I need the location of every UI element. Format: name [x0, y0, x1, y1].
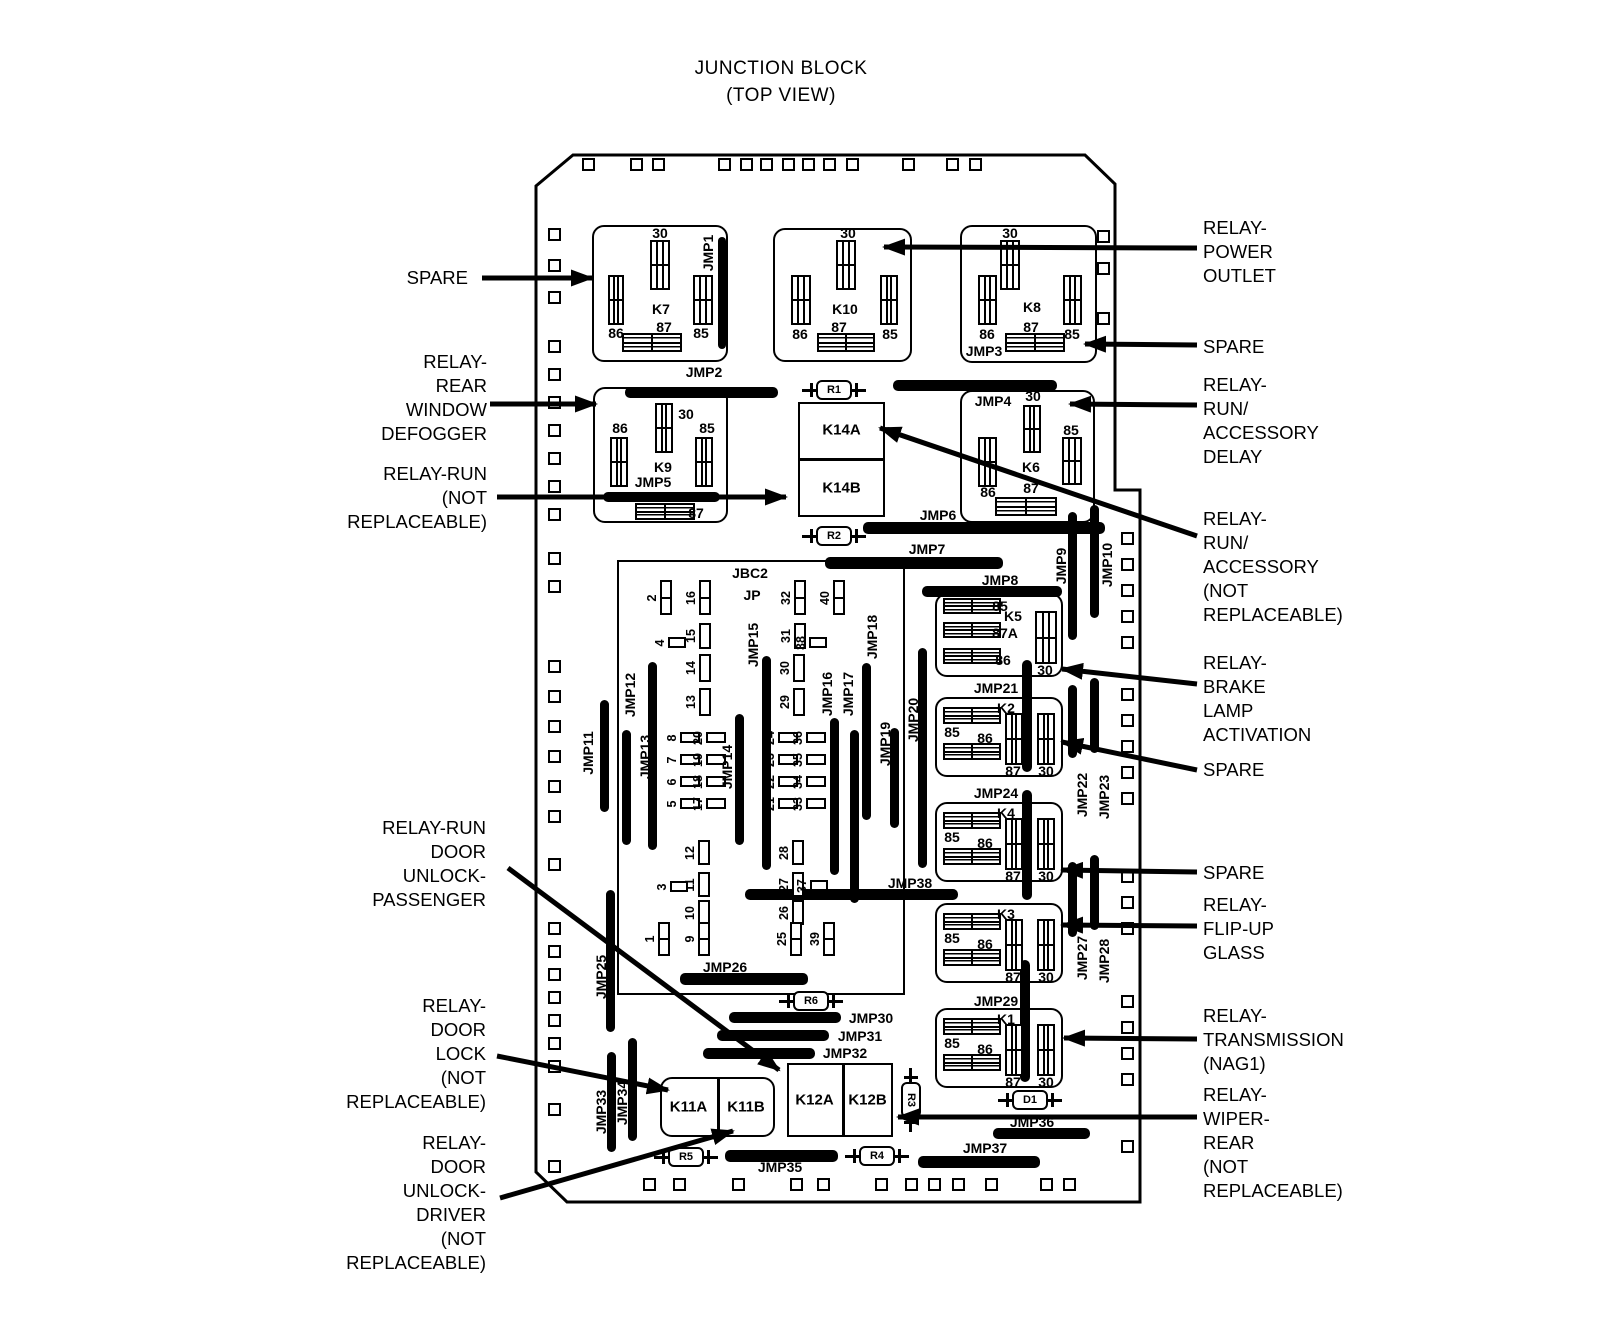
jmp37-bar [918, 1156, 1040, 1168]
label-rear-window-defogger: RELAY-REARWINDOWDEFOGGER [381, 350, 487, 446]
edge-square-right-2-9 [1121, 766, 1134, 779]
jmp21-label: JMP21 [974, 680, 1018, 696]
label-relay-wiper-rear: RELAY-WIPER-REAR(NOTREPLACEABLE) [1203, 1083, 1343, 1203]
edge-square-right-2-8 [1121, 740, 1134, 753]
cavity-36 [806, 732, 826, 743]
label-relay-door-lock-line-1: RELAY- [346, 994, 486, 1018]
edge-square-top-13 [969, 158, 982, 171]
cavity-number-38: 38 [794, 636, 808, 650]
edge-square-bottom-6 [875, 1178, 888, 1191]
jmp13-bar [622, 730, 631, 845]
relay-name-k6: K6 [1022, 459, 1040, 475]
edge-square-left-20 [548, 922, 561, 935]
cavity-25 [790, 922, 802, 956]
pin87-k10: 87 [831, 319, 847, 335]
jmp32-label: JMP32 [823, 1045, 867, 1061]
label-relay-run-accessory-not-replaceable-line-4: (NOT [1203, 579, 1343, 603]
cavity-37 [810, 880, 828, 891]
label-relay-door-unlock-driver-line-2: DOOR [346, 1155, 486, 1179]
pin85-k1: 85 [944, 1035, 960, 1051]
pin30-k7: 30 [652, 225, 668, 241]
edge-square-top-3 [652, 158, 665, 171]
label-relay-brake-lamp-activation-line-2: BRAKE [1203, 675, 1311, 699]
label-relay-transmission-nag1-line-2: TRANSMISSION [1203, 1028, 1344, 1052]
jmp7-bar [825, 557, 1003, 569]
cavity-number-35: 35 [791, 753, 805, 767]
edge-square-left-12 [548, 580, 561, 593]
cavity-32 [794, 580, 806, 615]
jmp16-label: JMP16 [819, 672, 835, 716]
label-relay-transmission-nag1: RELAY-TRANSMISSION(NAG1) [1203, 1004, 1344, 1076]
pin30-k5: 30 [1037, 662, 1053, 678]
jmp18-label: JMP18 [864, 615, 880, 659]
label-rear-window-defogger-line-2: REAR [381, 374, 487, 398]
label-spare-right-3-line-1: SPARE [1203, 861, 1264, 885]
pin30-k9: 30 [678, 406, 694, 422]
component-r6: R6 [779, 991, 843, 1011]
edge-square-right-2-12 [1121, 896, 1134, 909]
pin87-k6: 87 [1023, 480, 1039, 496]
label-relay-door-lock-line-3: LOCK [346, 1042, 486, 1066]
relay-name-k9: K9 [654, 459, 672, 475]
label-relay-run-accessory-delay: RELAY-RUN/ACCESSORYDELAY [1203, 373, 1319, 469]
relay-name-k11b: K11B [727, 1099, 765, 1116]
jmp34-label: JMP34 [614, 1081, 630, 1125]
jmp22-bar [1068, 685, 1077, 758]
label-rear-window-defogger-line-4: DEFOGGER [381, 422, 487, 446]
jmp17-bar [850, 730, 859, 903]
relay-name-k4: K4 [997, 805, 1015, 821]
cavity-number-3: 3 [655, 883, 669, 890]
edge-square-right-1-3 [1097, 312, 1110, 325]
cavity-33 [806, 798, 826, 809]
relay-terminal-9 [1000, 240, 1020, 290]
label-relay-wiper-rear-line-2: WIPER- [1203, 1107, 1343, 1131]
cavity-number-8: 8 [665, 734, 679, 741]
edge-square-bottom-4 [790, 1178, 803, 1191]
jmp38-label: JMP38 [888, 875, 932, 891]
edge-square-left-8 [548, 452, 561, 465]
component-tick [810, 529, 813, 543]
cavity-number-16: 16 [684, 591, 698, 605]
edge-square-bottom-7 [905, 1178, 918, 1191]
edge-square-top-4 [718, 158, 731, 171]
cavity-number-34: 34 [791, 775, 805, 789]
component-body-r5: R5 [668, 1147, 704, 1167]
cavity-12 [698, 840, 710, 865]
cavity-3 [670, 881, 688, 892]
jmp20-bar [918, 648, 927, 868]
relay-name-k11a: K11A [670, 1099, 708, 1116]
relay-terminal-11 [1063, 275, 1082, 325]
pin85-k6: 85 [1063, 422, 1079, 438]
jmp35-label: JMP35 [758, 1159, 802, 1175]
relay-terminal-19 [1062, 437, 1082, 485]
edge-square-left-15 [548, 720, 561, 733]
pin85-k9: 85 [699, 420, 715, 436]
edge-square-bottom-8 [928, 1178, 941, 1191]
jmp31-bar [717, 1030, 829, 1041]
cavity-number-33: 33 [791, 797, 805, 811]
jmp3-label: JMP3 [966, 343, 1003, 359]
component-tick [707, 1150, 710, 1164]
label-relay-brake-lamp-activation-line-1: RELAY- [1203, 651, 1311, 675]
jmp4-label: JMP4 [975, 393, 1012, 409]
cavity-39 [823, 922, 835, 956]
edge-square-right-2-3 [1121, 584, 1134, 597]
cavity-number-5: 5 [665, 800, 679, 807]
edge-square-top-10 [846, 158, 859, 171]
cavity-number-27: 27 [777, 878, 791, 892]
label-relay-run-accessory-not-replaceable-line-5: REPLACEABLE) [1203, 603, 1343, 627]
relay-terminal-37 [943, 1018, 1001, 1035]
relay-terminal-25 [943, 707, 1001, 724]
jmp20-label: JMP20 [905, 698, 921, 742]
edge-square-right-2-16 [1121, 1047, 1134, 1060]
pin86-k10: 86 [792, 326, 808, 342]
cavity-number-9: 9 [683, 936, 697, 943]
edge-square-top-2 [630, 158, 643, 171]
relay-terminal-4 [622, 333, 682, 352]
relay-terminal-23 [943, 648, 1001, 664]
label-relay-run-accessory-delay-line-3: ACCESSORY [1203, 421, 1319, 445]
label-relay-wiper-rear-line-3: REAR [1203, 1131, 1343, 1155]
edge-square-top-11 [902, 158, 915, 171]
jmp17-label: JMP17 [840, 672, 856, 716]
component-tick [855, 529, 858, 543]
pin30-k10: 30 [840, 225, 856, 241]
edge-square-right-1-1 [1097, 230, 1110, 243]
jmp28-label: JMP28 [1096, 939, 1112, 983]
edge-square-bottom-2 [673, 1178, 686, 1191]
relay-terminal-14 [610, 437, 628, 487]
pin30-k1: 30 [1038, 1074, 1054, 1090]
cavity-number-1: 1 [643, 936, 657, 943]
edge-square-left-5 [548, 368, 561, 381]
edge-square-left-28 [548, 1160, 561, 1173]
pin86-k1: 86 [977, 1041, 993, 1057]
jmp22-label: JMP22 [1074, 773, 1090, 817]
edge-square-left-27 [548, 1103, 561, 1116]
label-relay-run-door-unlock-passenger-line-1: RELAY-RUN [372, 816, 486, 840]
jmp14-bar [735, 714, 744, 845]
edge-square-bottom-12 [1063, 1178, 1076, 1191]
component-body-r1: R1 [816, 380, 852, 400]
component-body-r6: R6 [793, 991, 829, 1011]
relay-column-bar-b [1022, 790, 1032, 900]
cavity-17 [706, 798, 726, 809]
edge-square-left-3 [548, 291, 561, 304]
relay-name-k12b: K12B [848, 1092, 886, 1109]
pin86-k8: 86 [979, 326, 995, 342]
jmp8-label: JMP8 [982, 572, 1019, 588]
label-relay-door-unlock-driver-line-4: DRIVER [346, 1203, 486, 1227]
component-tick [898, 1149, 901, 1163]
component-tick [853, 1149, 856, 1163]
jmp25-label: JMP25 [593, 955, 609, 999]
cavity-11 [698, 872, 710, 897]
relay-terminal-10 [978, 275, 997, 325]
component-body-d1: D1 [1012, 1090, 1048, 1110]
relay-terminal-1 [650, 240, 670, 290]
relay-name-k14b: K14B [822, 479, 860, 496]
relay-name-k1: K1 [997, 1011, 1015, 1027]
cavity-number-23: 23 [763, 753, 777, 767]
cavity-14 [699, 654, 711, 682]
edge-square-right-2-18 [1121, 1140, 1134, 1153]
relay-terminal-20 [995, 497, 1057, 516]
pin87-k3: 87 [1005, 969, 1021, 985]
relay-name-k7: K7 [652, 301, 670, 317]
jmp2-bar [625, 387, 778, 398]
edge-square-top-6 [760, 158, 773, 171]
label-relay-flip-up-glass-line-3: GLASS [1203, 941, 1274, 965]
edge-square-top-9 [823, 158, 836, 171]
relay-terminal-40 [1037, 1024, 1055, 1076]
relay-terminal-15 [695, 437, 713, 487]
cavity-number-15: 15 [684, 629, 698, 643]
component-r5: R5 [654, 1147, 718, 1167]
relay-terminal-5 [836, 240, 856, 290]
label-relay-door-unlock-driver-line-1: RELAY- [346, 1131, 486, 1155]
edge-square-left-25 [548, 1037, 561, 1050]
edge-square-left-19 [548, 858, 561, 871]
label-relay-run-accessory-delay-line-2: RUN/ [1203, 397, 1319, 421]
component-r2: R2 [802, 526, 866, 546]
jmp32-bar [703, 1048, 815, 1059]
jmp13-label: JMP13 [637, 735, 653, 779]
label-relay-run-accessory-not-replaceable: RELAY-RUN/ACCESSORY(NOTREPLACEABLE) [1203, 507, 1343, 627]
title-line-1: JUNCTION BLOCK [531, 55, 1031, 82]
pin85-k2: 85 [944, 724, 960, 740]
edge-square-right-2-17 [1121, 1073, 1134, 1086]
jmp15-label: JMP15 [745, 623, 761, 667]
label-relay-run-not-replaceable-line-1: RELAY-RUN [347, 462, 487, 486]
jmp1-bar [718, 237, 726, 349]
label-relay-run-accessory-not-replaceable-line-2: RUN/ [1203, 531, 1343, 555]
component-tick [904, 1076, 918, 1079]
label-relay-run-not-replaceable-line-2: (NOT [347, 486, 487, 510]
label-spare-right-2-line-1: SPARE [1203, 758, 1264, 782]
pin86-k2: 86 [977, 730, 993, 746]
component-tick [855, 383, 858, 397]
pin87a-k5: 87A [992, 625, 1018, 641]
component-r1: R1 [802, 380, 866, 400]
jmp36-label: JMP36 [1010, 1114, 1054, 1130]
label-relay-run-door-unlock-passenger-line-3: UNLOCK- [372, 864, 486, 888]
label-relay-power-outlet-line-3: OUTLET [1203, 264, 1276, 288]
label-relay-door-unlock-driver-line-5: (NOT [346, 1227, 486, 1251]
relay-terminal-29 [943, 812, 1001, 829]
relay-divider-k11 [717, 1077, 720, 1137]
relay-terminal-33 [943, 913, 1001, 930]
label-relay-brake-lamp-activation-line-3: LAMP [1203, 699, 1311, 723]
arrow-transmission [1064, 1038, 1197, 1039]
component-body-r4: R4 [859, 1146, 895, 1166]
edge-square-right-2-15 [1121, 1021, 1134, 1034]
component-r3: R3 [901, 1068, 921, 1132]
jmp28-bar [1090, 855, 1099, 930]
jmp18-bar [862, 663, 871, 820]
jmp16-bar [830, 718, 839, 875]
cavity-number-20: 20 [691, 731, 705, 745]
cavity-number-24: 24 [763, 731, 777, 745]
pin87-k7: 87 [656, 319, 672, 335]
label-relay-run-door-unlock-passenger-line-4: PASSENGER [372, 888, 486, 912]
edge-square-top-5 [740, 158, 753, 171]
jmp6-label: JMP6 [920, 507, 957, 523]
pin85-k7: 85 [693, 325, 709, 341]
pin86-k5: 86 [995, 652, 1011, 668]
cavity-20 [706, 732, 726, 743]
relay-terminal-28 [1037, 713, 1055, 765]
cavity-38 [809, 637, 827, 648]
label-relay-run-door-unlock-passenger: RELAY-RUNDOORUNLOCK-PASSENGER [372, 816, 486, 912]
label-relay-door-lock-line-2: DOOR [346, 1018, 486, 1042]
pin30-k3: 30 [1038, 969, 1054, 985]
label-relay-run-accessory-delay-line-4: DELAY [1203, 445, 1319, 469]
edge-square-left-26 [548, 1060, 561, 1073]
label-relay-power-outlet-line-2: POWER [1203, 240, 1276, 264]
edge-square-left-22 [548, 968, 561, 981]
edge-square-left-16 [548, 750, 561, 763]
relay-terminal-36 [1037, 919, 1055, 971]
label-relay-door-unlock-driver-line-3: UNLOCK- [346, 1179, 486, 1203]
cavity-2 [660, 580, 672, 615]
edge-square-bottom-3 [732, 1178, 745, 1191]
cavity-number-10: 10 [683, 906, 697, 920]
label-spare-right-3: SPARE [1203, 861, 1264, 885]
jmp37-label: JMP37 [963, 1140, 1007, 1156]
label-rear-window-defogger-line-1: RELAY- [381, 350, 487, 374]
cavity-number-28: 28 [777, 846, 791, 860]
label-relay-door-unlock-driver: RELAY-DOORUNLOCK-DRIVER(NOTREPLACEABLE) [346, 1131, 486, 1275]
label-spare-right-1: SPARE [1203, 335, 1264, 359]
label-relay-wiper-rear-line-1: RELAY- [1203, 1083, 1343, 1107]
label-relay-flip-up-glass-line-2: FLIP-UP [1203, 917, 1274, 941]
jmp5-bar [603, 492, 720, 502]
label-relay-power-outlet-line-1: RELAY- [1203, 216, 1276, 240]
label-spare-left-line-1: SPARE [407, 266, 468, 290]
relay-name-k14a: K14A [822, 422, 860, 439]
label-relay-run-not-replaceable-line-3: REPLACEABLE) [347, 510, 487, 534]
component-body-r3: R3 [901, 1082, 921, 1118]
edge-square-right-2-7 [1121, 714, 1134, 727]
jmp10-label: JMP10 [1099, 543, 1115, 587]
edge-square-top-7 [782, 158, 795, 171]
cavity-number-40: 40 [818, 591, 832, 605]
cavity-number-12: 12 [683, 846, 697, 860]
edge-square-top-12 [946, 158, 959, 171]
edge-square-left-17 [548, 780, 561, 793]
edge-square-left-10 [548, 508, 561, 521]
jmp23-bar [1090, 678, 1099, 753]
label-relay-brake-lamp-activation-line-4: ACTIVATION [1203, 723, 1311, 747]
edge-square-bottom-11 [1040, 1178, 1053, 1191]
component-d1: D1 [998, 1090, 1062, 1110]
cavity-number-13: 13 [684, 695, 698, 709]
cavity-40 [833, 580, 845, 615]
cavity-number-4: 4 [653, 639, 667, 646]
edge-square-right-2-4 [1121, 610, 1134, 623]
pin85-k10: 85 [882, 326, 898, 342]
label-relay-run-door-unlock-passenger-line-2: DOOR [372, 840, 486, 864]
component-tick [810, 383, 813, 397]
relay-terminal-8 [817, 333, 875, 352]
edge-square-right-2-10 [1121, 792, 1134, 805]
pin30-k8: 30 [1002, 225, 1018, 241]
jmp23-label: JMP23 [1096, 775, 1112, 819]
relay-terminal-24 [1035, 611, 1057, 664]
edge-square-right-2-11 [1121, 870, 1134, 883]
component-r4: R4 [845, 1146, 909, 1166]
cavity-15 [699, 623, 711, 649]
pin85-k8: 85 [1064, 326, 1080, 342]
relay-terminal-7 [880, 275, 898, 325]
pin86-k3: 86 [977, 936, 993, 952]
cavity-1 [658, 922, 670, 956]
relay-terminal-35 [1005, 919, 1023, 971]
label-spare-right-1-line-1: SPARE [1203, 335, 1264, 359]
relay-divider-k14 [798, 458, 885, 461]
cavity-number-37: 37 [795, 879, 809, 893]
jmp1-label: JMP1 [700, 235, 716, 272]
edge-square-left-21 [548, 945, 561, 958]
label-relay-wiper-rear-line-5: REPLACEABLE) [1203, 1179, 1343, 1203]
edge-square-left-6 [548, 396, 561, 409]
pin87-k2: 87 [1005, 763, 1021, 779]
pin86-k9: 86 [612, 420, 628, 436]
pin30-k6: 30 [1025, 388, 1041, 404]
cavity-30 [793, 654, 805, 682]
jmp12-label: JMP12 [622, 673, 638, 717]
edge-square-bottom-1 [643, 1178, 656, 1191]
relay-terminal-16 [635, 503, 695, 520]
relay-terminal-2 [608, 275, 624, 325]
jmp10-bar [1090, 505, 1099, 618]
relay-terminal-31 [1005, 818, 1023, 870]
relay-terminal-13 [655, 403, 673, 453]
cavity-number-30: 30 [778, 661, 792, 675]
arrow-door-lock [497, 1056, 668, 1090]
relay-terminal-12 [1005, 333, 1065, 352]
component-tick [1006, 1093, 1009, 1107]
pin85-k4: 85 [944, 829, 960, 845]
pin86-k7: 86 [608, 325, 624, 341]
edge-square-left-14 [548, 690, 561, 703]
cavity-number-32: 32 [779, 591, 793, 605]
label-relay-door-unlock-driver-line-6: REPLACEABLE) [346, 1251, 486, 1275]
cavity-number-19: 19 [691, 753, 705, 767]
pin86-k6: 86 [980, 484, 996, 500]
label-spare-left: SPARE [407, 266, 468, 290]
relay-name-k10: K10 [832, 301, 858, 317]
label-relay-transmission-nag1-line-3: (NAG1) [1203, 1052, 1344, 1076]
relay-divider-k12 [842, 1063, 845, 1137]
jmp33-label: JMP33 [593, 1090, 609, 1134]
pin30-k2: 30 [1038, 763, 1054, 779]
jmp30-label: JMP30 [849, 1010, 893, 1026]
component-tick [832, 994, 835, 1008]
cavity-35 [806, 754, 826, 765]
edge-square-top-1 [582, 158, 595, 171]
cavity-number-31: 31 [779, 629, 793, 643]
relay-terminal-6 [791, 275, 811, 325]
cavity-number-2: 2 [645, 594, 659, 601]
relay-terminal-17 [1023, 405, 1041, 453]
edge-square-right-2-13 [1121, 922, 1134, 935]
jmp27-bar [1068, 862, 1077, 937]
